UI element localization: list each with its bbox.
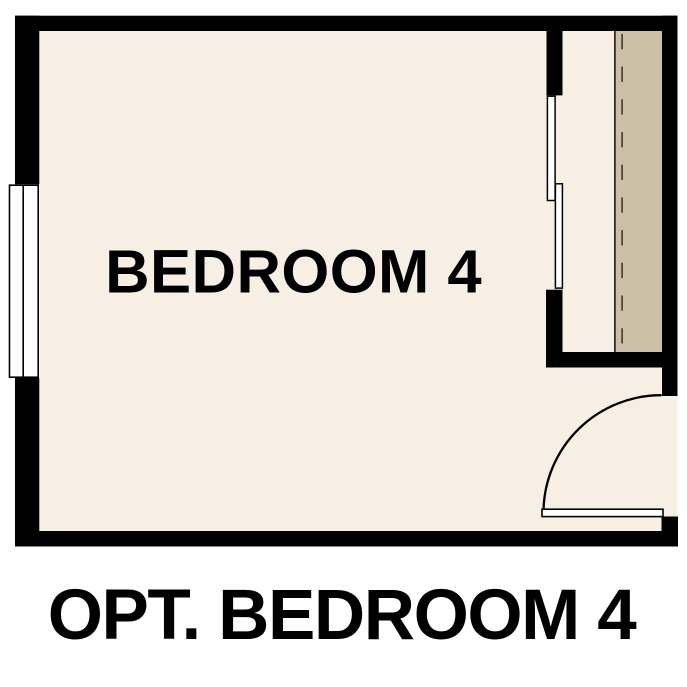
svg-text:BEDROOM 4: BEDROOM 4 [105, 238, 482, 307]
svg-text:OPT. BEDROOM 4: OPT. BEDROOM 4 [48, 576, 638, 655]
